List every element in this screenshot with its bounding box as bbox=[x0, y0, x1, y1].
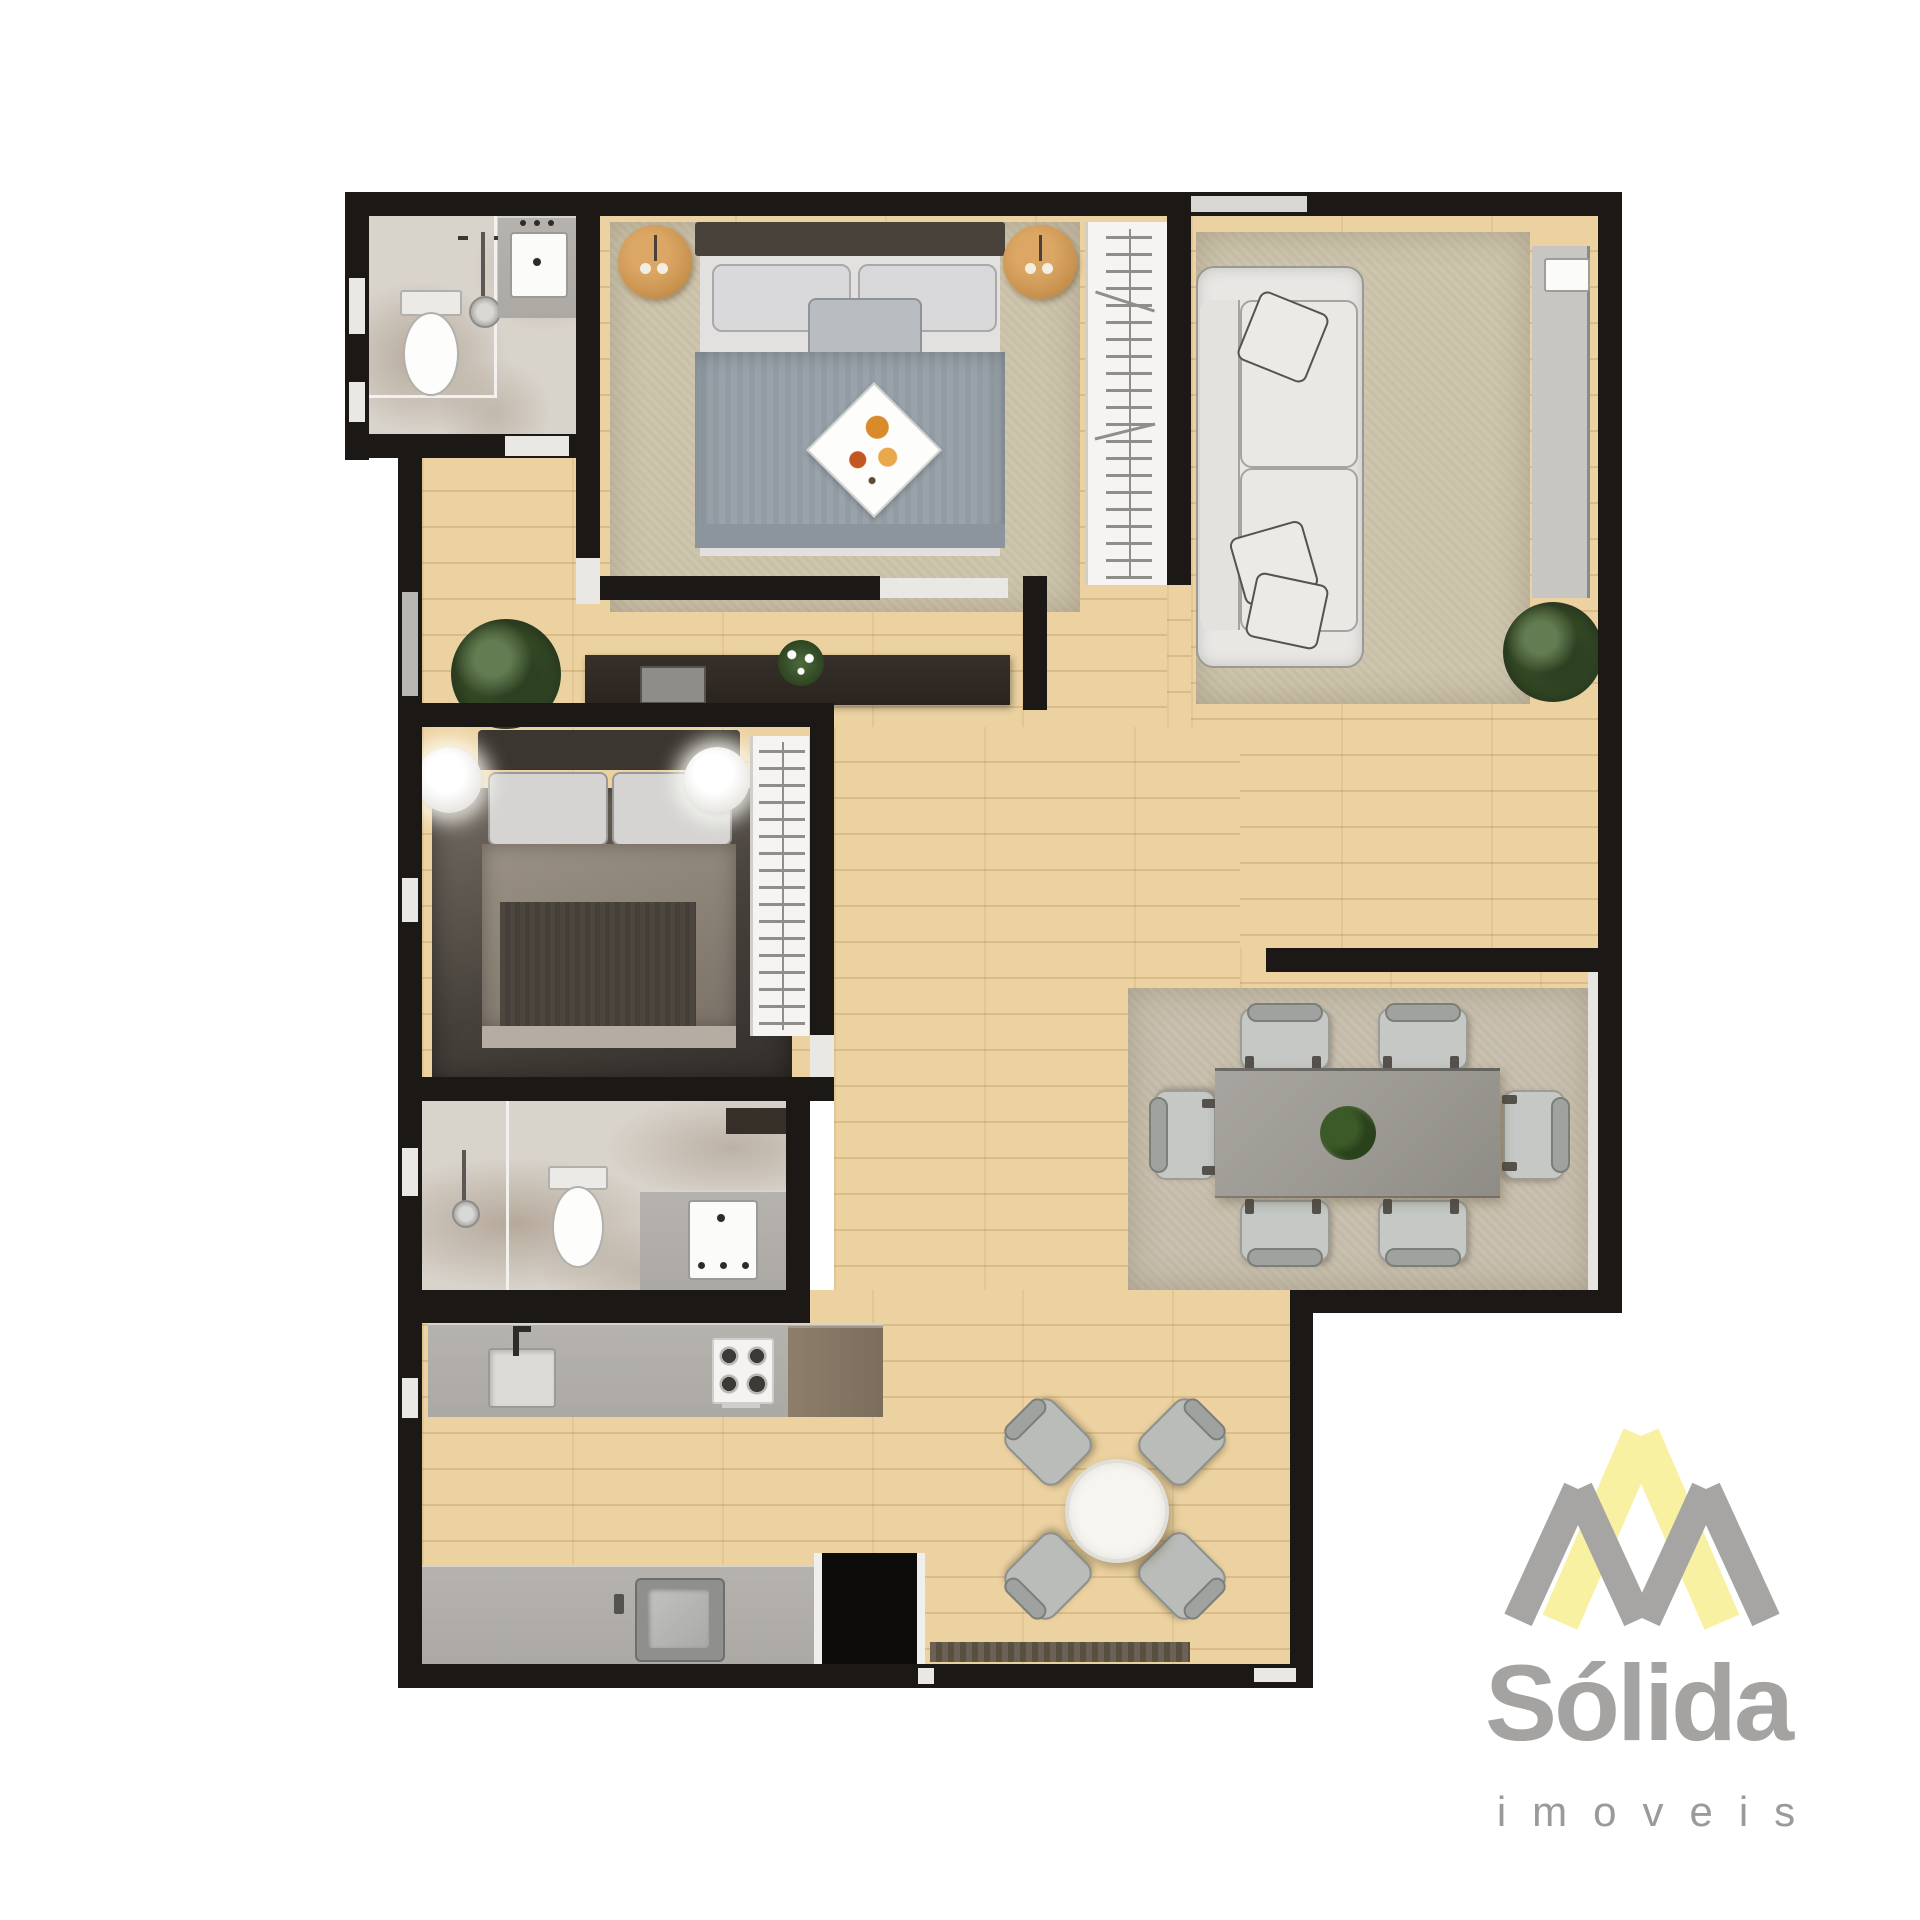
dining-chair-top-2 bbox=[1378, 1008, 1468, 1070]
sofa-backrest bbox=[1200, 300, 1240, 630]
bed-2-throw bbox=[500, 902, 696, 1030]
wall-top bbox=[345, 192, 1622, 216]
laundry-faucet bbox=[717, 1214, 725, 1222]
floorplan-render: Sólida imoveis bbox=[0, 0, 1920, 1920]
wall-bath2-right bbox=[786, 1077, 810, 1313]
window-top bbox=[1187, 196, 1307, 212]
cooktop-controls bbox=[722, 1402, 760, 1408]
wall-bedroom2-top bbox=[398, 703, 834, 727]
wall-dining-bottom bbox=[1300, 1290, 1622, 1313]
shower-head-icon bbox=[469, 296, 501, 328]
bed-2-pillow-left bbox=[488, 772, 608, 846]
tv-screen bbox=[1544, 258, 1590, 292]
open-wardrobe-1 bbox=[1085, 222, 1170, 585]
shower-arm bbox=[481, 232, 485, 296]
dining-chair-bottom-1 bbox=[1240, 1200, 1330, 1262]
shower-2-arm bbox=[462, 1150, 466, 1202]
service-recess-jamb-left bbox=[814, 1553, 822, 1677]
dining-chair-bottom-2 bbox=[1378, 1200, 1468, 1262]
window-hall bbox=[402, 592, 418, 696]
dining-chair-left bbox=[1154, 1090, 1216, 1180]
console-flowers bbox=[778, 640, 824, 686]
laundry-knobs bbox=[698, 1262, 705, 1269]
door-bath1 bbox=[505, 436, 569, 456]
dining-centerpiece-plant bbox=[1320, 1106, 1376, 1160]
tv-panel bbox=[1532, 246, 1590, 598]
console-tv bbox=[640, 666, 706, 704]
step-bottom-right bbox=[1254, 1668, 1296, 1682]
service-recess-jamb-right bbox=[917, 1553, 925, 1677]
toilet-2-bowl bbox=[552, 1186, 604, 1268]
door-bedroom1-left bbox=[576, 558, 600, 604]
gas-cooktop bbox=[712, 1338, 774, 1404]
wall-stub-corridor bbox=[1023, 576, 1047, 710]
brand-tagline: imoveis bbox=[1436, 1788, 1856, 1836]
door-bedroom1-bottom bbox=[880, 578, 1008, 598]
wall-bedroom2-bottom bbox=[398, 1077, 834, 1101]
wall-dining-top bbox=[1266, 948, 1622, 972]
shower-2-head-icon bbox=[452, 1200, 480, 1228]
wall-bedroom1-left-stub bbox=[576, 458, 600, 558]
entry-sill bbox=[918, 1668, 934, 1684]
window-bedroom2 bbox=[402, 878, 418, 922]
kitchen-cabinet-brown bbox=[788, 1326, 883, 1417]
sill-dining-right bbox=[1588, 972, 1598, 1290]
bedside-lamp-right bbox=[684, 747, 750, 813]
wall-lower-right bbox=[1290, 1290, 1313, 1688]
service-recess bbox=[822, 1553, 917, 1677]
steel-sink-basin bbox=[647, 1588, 709, 1648]
window-bath1-b bbox=[349, 382, 365, 422]
terrace-faucet bbox=[614, 1594, 624, 1614]
kitchen-sink bbox=[488, 1348, 556, 1408]
window-bath2 bbox=[402, 1148, 418, 1196]
nightstand-left bbox=[618, 225, 692, 299]
bath2-divider bbox=[506, 1101, 509, 1290]
wall-bedroom1-bottom bbox=[600, 576, 880, 600]
dining-chair-right bbox=[1503, 1090, 1565, 1180]
toilet-1-bowl bbox=[403, 312, 459, 396]
wall-bath2-bottom bbox=[398, 1290, 810, 1323]
dining-chair-top-1 bbox=[1240, 1008, 1330, 1070]
terrace-counter bbox=[422, 1565, 815, 1664]
bath1-vanity-knobs bbox=[520, 220, 526, 226]
window-kitchen bbox=[402, 1378, 418, 1418]
kitchen-faucet-spout bbox=[513, 1326, 531, 1332]
bed-2-fold bbox=[482, 1026, 736, 1048]
living-room-plant bbox=[1503, 602, 1603, 702]
window-bath1-a bbox=[349, 278, 365, 334]
bedside-lamp-left bbox=[416, 747, 482, 813]
wall-bottom bbox=[398, 1664, 1313, 1688]
wall-right bbox=[1598, 192, 1622, 1313]
bed-1-headboard bbox=[695, 222, 1005, 256]
round-table bbox=[1065, 1459, 1169, 1563]
brand-name: Sólida bbox=[1436, 1646, 1840, 1759]
shower-valve bbox=[458, 236, 468, 240]
wall-bath1-right bbox=[576, 192, 600, 458]
doormat bbox=[930, 1642, 1190, 1662]
bed-1-cushion bbox=[808, 298, 922, 360]
bath1-faucet bbox=[533, 258, 541, 266]
wall-bedroom1-living-divider bbox=[1167, 192, 1191, 585]
nightstand-right bbox=[1003, 225, 1077, 299]
open-wardrobe-2 bbox=[750, 736, 811, 1036]
bed-1-duvet-fold bbox=[695, 524, 1005, 548]
